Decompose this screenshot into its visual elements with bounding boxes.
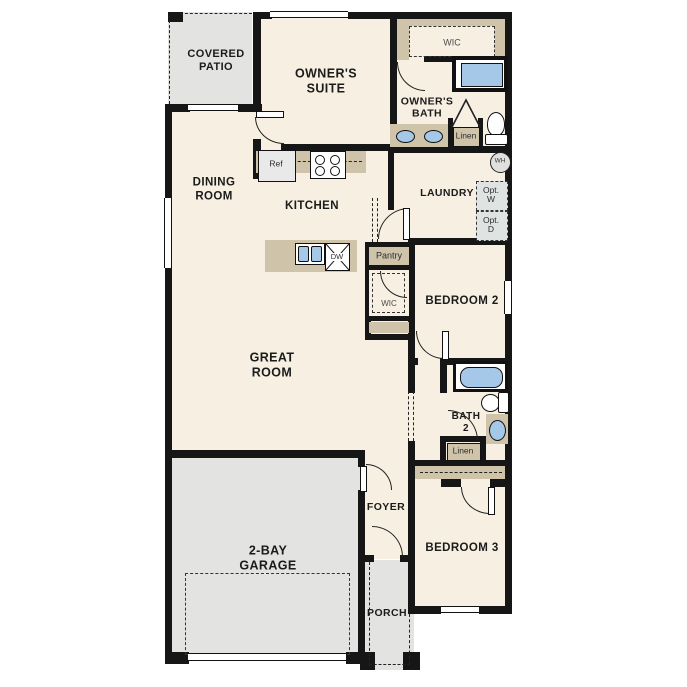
porch-dash <box>409 614 410 664</box>
island-sink <box>295 243 325 265</box>
tub-basin <box>460 367 503 388</box>
door-leaf-owners-suite <box>256 111 284 118</box>
room-label-porch: PORCH <box>367 607 407 619</box>
wall-segment <box>408 358 418 365</box>
wall-segment <box>390 12 397 60</box>
wall-segment <box>441 479 461 487</box>
burner <box>330 166 340 176</box>
wall-segment <box>358 490 365 655</box>
door-leaf-bedroom2 <box>442 331 449 360</box>
wall-segment <box>408 455 415 613</box>
door-leaf-laundry <box>403 208 410 240</box>
sink-basin <box>298 246 309 262</box>
wall-segment <box>165 267 172 457</box>
toilet-tank <box>498 392 509 413</box>
vanity-sink <box>396 130 415 143</box>
room-label-kitchen: KITCHEN <box>285 200 339 214</box>
window <box>504 281 512 314</box>
wall-segment <box>165 104 190 112</box>
room-label-bath2: BATH 2 <box>452 411 481 435</box>
wall-segment <box>165 450 365 458</box>
label-dw: DW <box>330 253 345 261</box>
label-ref: Ref <box>269 160 282 169</box>
label-opt-dryer: Opt. D <box>483 216 499 234</box>
room-label-foyer: FOYER <box>367 501 405 513</box>
label-opt-washer: Opt. W <box>483 186 499 204</box>
closet-rod-dash <box>420 472 502 473</box>
burner <box>315 155 325 165</box>
window <box>270 11 348 18</box>
bathtub <box>453 361 508 392</box>
label-water-heater: WH <box>495 159 506 166</box>
room-label-dining: DINING ROOM <box>193 176 236 203</box>
label-linen-hall: Linen <box>453 447 474 456</box>
porch-post-right <box>403 652 420 670</box>
toilet-owner <box>485 112 507 148</box>
owners-vanity <box>390 124 448 147</box>
hall-greatroom-opening <box>413 391 414 441</box>
door-leaf-garage-entry <box>360 466 367 492</box>
garage-door <box>188 653 346 661</box>
wall-segment <box>365 334 411 340</box>
wall-segment <box>165 450 172 664</box>
patio-open-edge <box>180 13 252 14</box>
toilet-bowl <box>487 112 505 136</box>
room-label-covered-patio: COVERED PATIO <box>187 48 244 74</box>
hall-greatroom-opening <box>408 391 409 441</box>
label-wic-hall: WIC <box>381 300 397 308</box>
bath2-vanity <box>486 414 508 444</box>
room-label-bedroom3: BEDROOM 3 <box>425 542 498 556</box>
room-label-laundry: LAUNDRY <box>420 187 474 199</box>
porch-post-left <box>360 652 375 670</box>
label-pantry: Pantry <box>376 251 402 260</box>
garage-door-swing-dashes <box>185 573 350 655</box>
porch-dash <box>369 664 410 665</box>
patio-slider-door <box>188 104 238 111</box>
vanity-sink <box>489 420 506 441</box>
wic-shelf-left <box>396 14 409 60</box>
door-leaf-bedroom3 <box>488 487 495 515</box>
hall-shelf-band <box>369 322 409 333</box>
toilet-bath2 <box>481 392 508 412</box>
patio-open-edge <box>169 15 170 104</box>
kitchen-hall-opening <box>372 198 373 242</box>
wall-segment <box>165 104 172 200</box>
burner <box>315 166 325 176</box>
vanity-sink <box>424 130 443 143</box>
wall-segment <box>253 12 261 112</box>
shower <box>452 56 508 92</box>
room-label-owners-suite: OWNER'S SUITE <box>295 66 357 96</box>
sink-basin <box>311 246 322 262</box>
shower-glass <box>461 63 503 87</box>
room-label-owners-bath: OWNER'S BATH <box>401 96 454 121</box>
window <box>441 606 479 613</box>
wall-segment <box>479 606 512 614</box>
room-label-garage: 2-BAY GARAGE <box>239 543 296 573</box>
stove <box>310 151 346 179</box>
window <box>164 198 172 268</box>
room-label-wic-owner: WIC <box>443 38 461 47</box>
wall-segment <box>348 12 512 19</box>
wall-segment <box>440 358 447 393</box>
wall-segment <box>408 238 415 365</box>
linen-owner-door <box>449 96 483 128</box>
wall-segment <box>490 479 508 487</box>
wall-segment <box>408 365 415 393</box>
toilet-tank <box>485 134 508 145</box>
room-label-great-room: GREAT ROOM <box>250 350 295 380</box>
wall-segment <box>281 144 398 151</box>
burner <box>330 155 340 165</box>
wall-segment <box>365 316 411 321</box>
label-linen-owner: Linen <box>456 132 477 141</box>
floor-plan: COVERED PATIO OWNER'S SUITE WIC OWNER'S … <box>0 0 687 687</box>
room-label-bedroom2: BEDROOM 2 <box>425 295 498 309</box>
wall-segment <box>388 146 394 210</box>
